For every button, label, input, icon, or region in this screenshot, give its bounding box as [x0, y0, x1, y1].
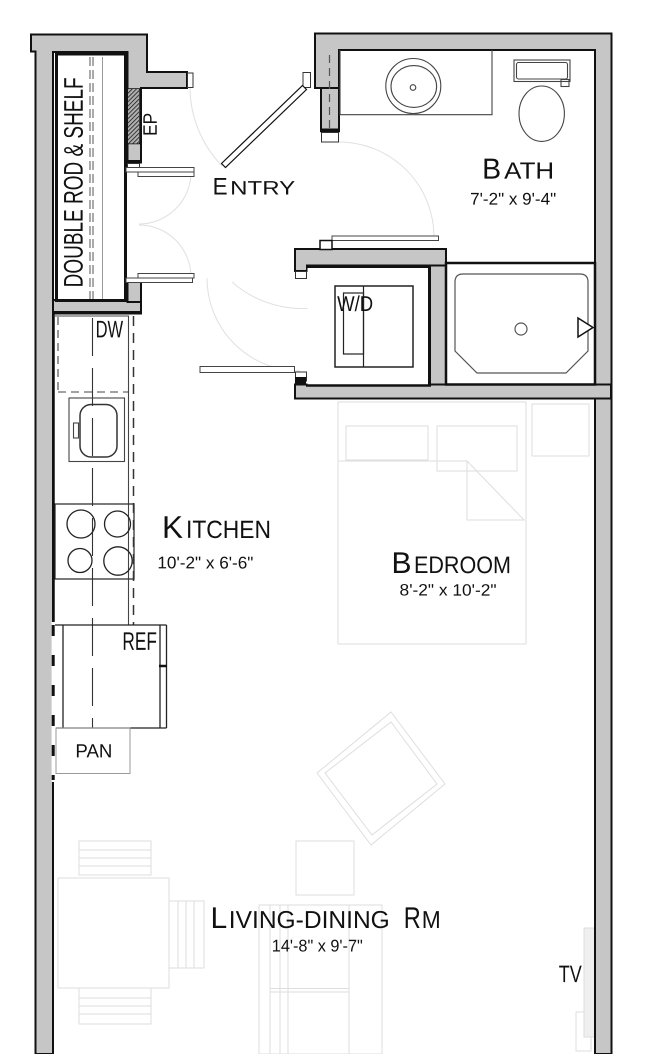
svg-text:M: M — [422, 907, 441, 934]
svg-text:NTRY: NTRY — [230, 177, 295, 199]
svg-text:EDROOM: EDROOM — [414, 552, 511, 579]
svg-text:14'-8" x 9'-7": 14'-8" x 9'-7" — [272, 936, 363, 955]
svg-text:10'-2" x 6'-6": 10'-2" x 6'-6" — [157, 553, 253, 572]
svg-text:DW: DW — [96, 316, 124, 343]
svg-text:ITCHEN: ITCHEN — [186, 516, 271, 544]
svg-text:REF: REF — [122, 628, 157, 656]
svg-text:DOUBLE ROD & SHELF: DOUBLE ROD & SHELF — [59, 77, 89, 287]
svg-text:R: R — [404, 902, 421, 935]
svg-text:8'-2" x 10'-2": 8'-2" x 10'-2" — [400, 582, 497, 600]
svg-text:EP: EP — [140, 113, 162, 136]
svg-text:7'-2" x 9'-4": 7'-2" x 9'-4" — [470, 190, 556, 209]
svg-text:B: B — [482, 154, 501, 186]
svg-text:TV: TV — [559, 961, 582, 988]
svg-text:E: E — [213, 173, 228, 200]
svg-text:B: B — [391, 547, 411, 580]
svg-text:K: K — [162, 509, 183, 545]
svg-text:ATH: ATH — [504, 158, 554, 184]
svg-text:IVING-DINING: IVING-DINING — [229, 907, 390, 934]
svg-text:L: L — [210, 902, 227, 935]
svg-text:W/D: W/D — [337, 292, 373, 316]
svg-text:PAN: PAN — [75, 741, 112, 762]
